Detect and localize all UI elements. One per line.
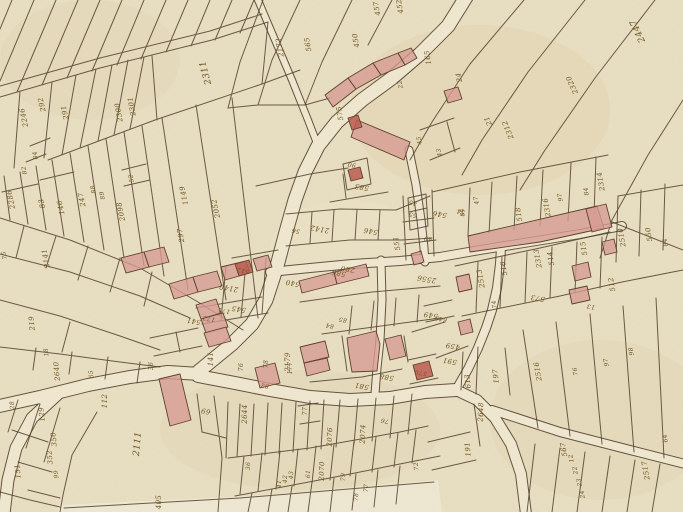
parcel-number-label: 405 (155, 495, 163, 511)
paper-stain (0, 0, 180, 120)
parcel-number-label: 61 (305, 470, 312, 479)
building-pink (458, 319, 473, 335)
parcel-number-label: 98 (627, 346, 635, 356)
parcel-number-label: 75 (0, 250, 8, 260)
parcel-number-label: 2644 (241, 404, 249, 424)
parcel-number-label: 79 (340, 473, 347, 482)
parcel-number-label: 2076 (326, 427, 335, 448)
cadastral-map-canvas: 2311230123002922912246848222868314624788… (0, 0, 683, 512)
parcel-number-label: 18 (43, 348, 51, 357)
parcel-number-label: 613 (463, 373, 472, 388)
parcel-number-label: 151 (13, 464, 22, 479)
building-pink (572, 262, 591, 281)
parcel-number-label: 84 (661, 237, 669, 247)
parcel-number-label: 65 (88, 370, 96, 379)
parcel-number-label: 350 (49, 431, 58, 446)
parcel-number-label: 76 (571, 366, 579, 376)
parcel-number-label: 84 (325, 321, 335, 329)
parcel-number-label: 55 (408, 210, 418, 218)
parcel-number-label: 77 (302, 407, 309, 415)
parcel-number-label: 28 (9, 401, 17, 411)
parcel-number-label: 191 (463, 442, 472, 457)
parcel-number-label: 97 (602, 357, 610, 367)
parcel-number-label: 129 (37, 406, 46, 421)
parcel-number-label: 74 (490, 299, 498, 309)
parcel-number-label: 141 (207, 352, 215, 367)
cadastral-map-scan: 2311230123002922912246848222868314624788… (0, 0, 683, 512)
parcel-number-label: 90 (347, 160, 357, 168)
parcel-number-label: 84 (582, 186, 590, 196)
parcel-number-label: 352 (45, 449, 54, 464)
parcel-number-label: 36 (148, 362, 155, 370)
parcel-number-label: 99 (53, 470, 61, 479)
parcel-number-label: 2074 (359, 424, 368, 445)
parcel-number-label: 84 (31, 150, 39, 160)
parcel-number-label: 56 (291, 226, 301, 234)
parcel-number-label: 54 (456, 207, 466, 215)
parcel-number-label: 112 (101, 394, 109, 409)
parcel-number-label: 43 (288, 471, 295, 481)
parcel-number-label: 36 (245, 462, 252, 471)
parcel-number-label: 13 (586, 302, 596, 310)
parcel-number-label: 76 (380, 416, 390, 424)
parcel-number-label: 12 (567, 453, 575, 463)
parcel-number-label: 76 (238, 363, 245, 371)
parcel-number-label: 85 (338, 315, 348, 323)
building-pink (456, 274, 472, 292)
parcel-number-label: 69 (200, 406, 211, 416)
parcel-number-label: 177 (287, 362, 294, 375)
parcel-number-label: 2070 (318, 461, 327, 482)
parcel-number-label: 2648 (477, 402, 486, 423)
parcel-number-label: 77 (363, 484, 370, 493)
parcel-number-label: 219 (27, 315, 36, 331)
parcel-number-label: 82 (20, 165, 28, 175)
building-pink (347, 331, 380, 372)
parcel-number-label: 72 (413, 462, 421, 471)
parcel-number-label: 64 (661, 433, 669, 443)
parcel-number-label: 197 (491, 368, 500, 383)
parcel-number-label: 78 (263, 360, 270, 368)
parcel-number-label: 97 (556, 192, 564, 202)
building-pink (602, 239, 617, 255)
parcel-number-label: 82 (260, 381, 270, 389)
parcel-number-label: 78 (353, 493, 360, 502)
